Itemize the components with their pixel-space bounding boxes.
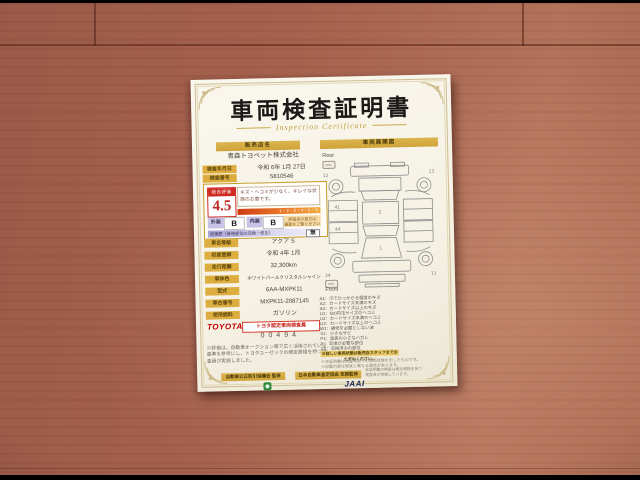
damage-legend: A1：爪でひっかかる程度のキズ A2：カードサイズ未満のキズ A3：カードサイズ… (319, 294, 398, 351)
disclaimer-text: ※評価は、自動車オークション等で広く活用されている基準を参考にし、トヨタユーゼッ… (207, 344, 327, 366)
jaai-supervision-bar: 日本自動車査定協会 定期監修 (295, 370, 361, 379)
repair-history-value: 無 (306, 229, 320, 237)
rear-label: Rear (322, 153, 334, 159)
overall-score-value: 4.5 (208, 196, 235, 217)
row-label: 初度登録 (204, 251, 238, 260)
front-label: Front (325, 287, 338, 293)
council-emblem-icon (263, 382, 271, 390)
diagram-mark: 1 (379, 246, 382, 252)
jaai-logo: JAAI (344, 379, 364, 388)
diagram-mark: 11 (431, 270, 437, 276)
row-label: 車名等級 (204, 239, 238, 248)
corner-flourish-icon (425, 354, 452, 381)
jaai-note-text: 本証明書の検査は検定資格を持つ検査員が実施しています。 (365, 367, 425, 378)
fair-trade-council-bar: 自動車公正取引協議会 監修 (221, 372, 285, 381)
interior-label: 内装 (247, 216, 263, 227)
vehicle-expanded-diagram: 13 12 41 44 1 2 34 11 (320, 158, 441, 289)
row-label: 型式 (205, 287, 239, 296)
diagram-mark: 44 (335, 227, 341, 233)
diagram-mark: 2 (378, 210, 381, 216)
inspection-date-label: 検査年月日 (202, 165, 236, 174)
row-label: 車体色 (205, 275, 239, 284)
photo-of-inspection-certificate: 車両検査証明書 Inspection Certificate 販売店名 青森トヨ… (0, 0, 640, 480)
row-label: 使用燃料 (206, 311, 240, 320)
repair-history-label: 修復歴（骨格部位の交換・修正） (210, 230, 273, 236)
diagram-mark: 41 (334, 205, 340, 211)
certificate-paper: 車両検査証明書 Inspection Certificate 販売店名 青森トヨ… (190, 74, 457, 392)
diagram-mark: 34 (325, 273, 331, 279)
interior-grade: B (263, 216, 284, 229)
inspector-comment: キズ・ヘコミが少なく、キレイな状態のお車です。 (237, 185, 320, 207)
subtitle-rule (372, 124, 406, 126)
diagram-mark: 12 (323, 173, 329, 179)
toyota-logo: TOYOTA (207, 322, 243, 332)
rating-note: 評価点の見方は 裏面をご覧ください (284, 215, 321, 227)
exterior-grade: B (224, 217, 245, 230)
subtitle-rule (237, 127, 271, 129)
rating-note-line2: 裏面をご覧ください (284, 221, 321, 227)
evaluation-box: 総合評価 4.5 キズ・ヘコミが少なく、キレイな状態のお車です。 1・2・3・4… (203, 181, 328, 240)
diagram-mark: 13 (429, 168, 435, 174)
letterbox-top (0, 0, 640, 3)
row-label: 走行距離 (205, 263, 239, 272)
letterbox-bottom (0, 475, 640, 480)
row-label: 車台番号 (205, 299, 239, 308)
repair-history-bar: 修復歴（骨格部位の交換・修正） 無 (208, 228, 321, 238)
exterior-label: 外装 (208, 217, 224, 228)
cert-no-label: 検査番号 (203, 174, 237, 183)
overall-score-box: 総合評価 4.5 (207, 187, 237, 218)
dealer-header-bar: 販売店名 (216, 141, 300, 152)
rating-scale-bar: 1・2・3・4・5・S (237, 207, 320, 215)
